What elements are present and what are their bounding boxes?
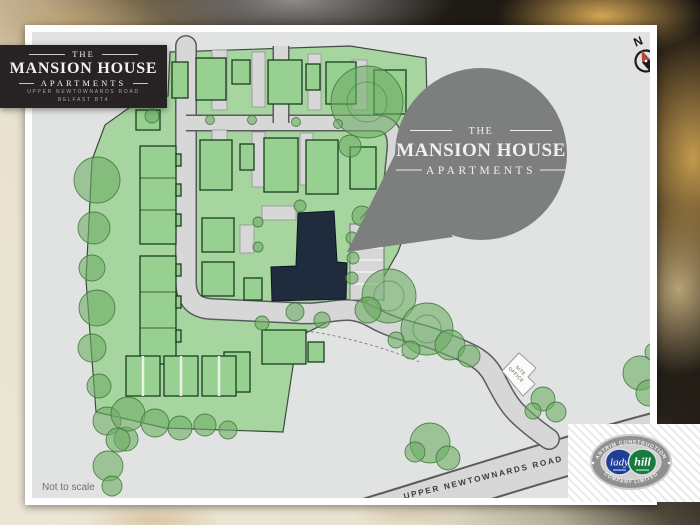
badge-subtitle: APARTMENTS bbox=[41, 79, 126, 88]
badge-address-line2: BELFAST BT4 bbox=[58, 98, 109, 103]
builder-logo: lady hill ANTRIM CONSTRUCTION COMPANY LI… bbox=[568, 424, 700, 502]
development-badge: THE MANSION HOUSE APARTMENTS UPPER NEWTO… bbox=[0, 45, 167, 108]
badge-rule bbox=[19, 83, 34, 84]
badge-rule bbox=[29, 54, 65, 55]
badge-title: MANSION HOUSE bbox=[10, 60, 158, 78]
scale-note: Not to scale bbox=[42, 482, 95, 493]
callout-subtitle: APARTMENTS bbox=[426, 165, 536, 177]
microtext-line bbox=[636, 470, 649, 471]
callout-title: MANSION HOUSE bbox=[396, 140, 566, 161]
builder-script-right: hill bbox=[634, 455, 651, 469]
callout-the: THE bbox=[469, 126, 494, 137]
microtext-line bbox=[613, 470, 626, 471]
semi-detached-row bbox=[126, 356, 236, 396]
badge-address-line1: UPPER NEWTOWNARDS ROAD bbox=[27, 90, 140, 95]
badge-the: THE bbox=[72, 50, 95, 59]
builder-script-left: lady bbox=[610, 457, 629, 469]
badge-rule bbox=[133, 83, 148, 84]
site-plan-brochure: SITE OFFICE bbox=[0, 0, 700, 525]
badge-rule bbox=[102, 54, 138, 55]
